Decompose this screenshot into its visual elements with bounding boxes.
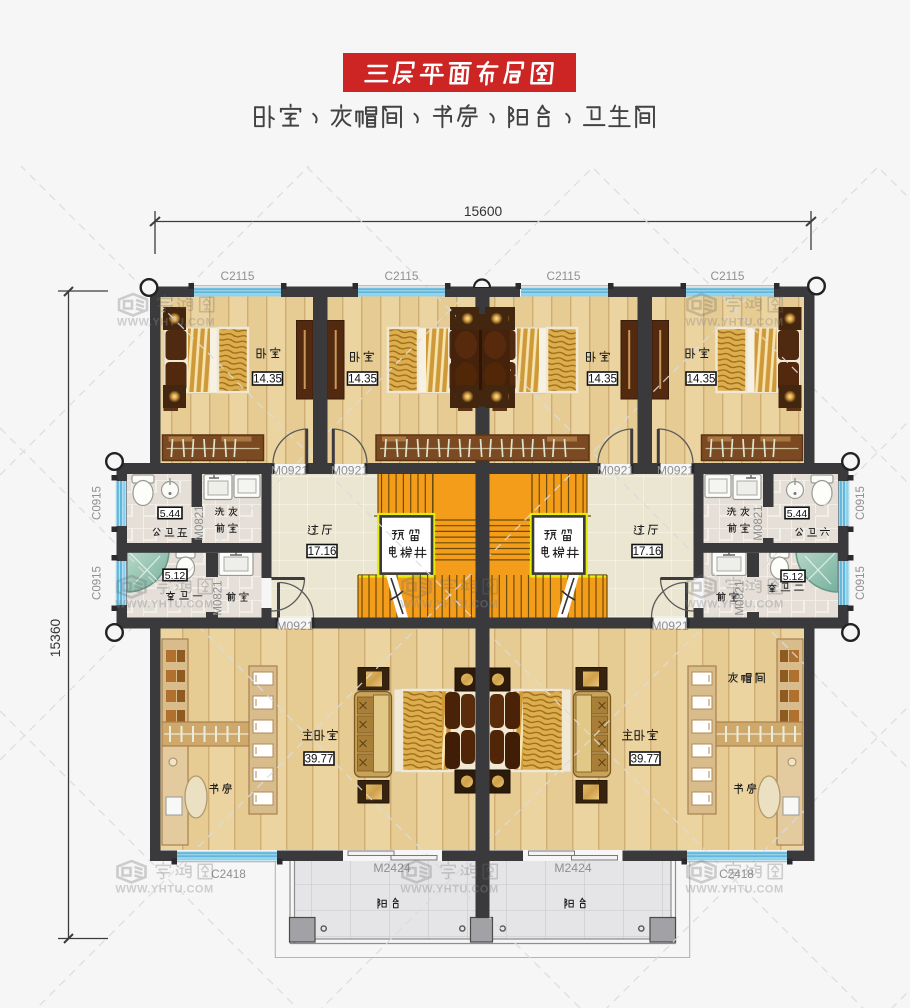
svg-text:WWW.YHTU.COM: WWW.YHTU.COM [115, 884, 213, 896]
svg-text:M0921: M0921 [271, 464, 308, 478]
svg-text:C2115: C2115 [385, 269, 419, 283]
svg-text:M0921: M0921 [657, 464, 694, 478]
svg-text:WWW.YHTU.COM: WWW.YHTU.COM [685, 599, 783, 611]
svg-text:5.44: 5.44 [787, 508, 808, 520]
svg-text:M0821: M0821 [213, 580, 225, 615]
svg-text:5.44: 5.44 [160, 508, 181, 520]
svg-text:WWW.YHTU.COM: WWW.YHTU.COM [400, 599, 498, 611]
svg-text:15600: 15600 [464, 204, 503, 219]
svg-text:C2418: C2418 [211, 867, 246, 881]
svg-text:C0915: C0915 [92, 566, 104, 600]
svg-text:C2115: C2115 [221, 269, 255, 283]
svg-text:M0921: M0921 [597, 464, 634, 478]
svg-text:WWW.YHTU.COM: WWW.YHTU.COM [115, 599, 213, 611]
svg-text:WWW.YHTU.COM: WWW.YHTU.COM [117, 317, 215, 329]
svg-text:WWW.YHTU.COM: WWW.YHTU.COM [685, 884, 783, 896]
svg-text:M2424: M2424 [373, 861, 410, 875]
svg-text:M0921: M0921 [276, 619, 313, 633]
svg-text:39.77: 39.77 [305, 754, 334, 766]
svg-text:M0821: M0821 [194, 505, 206, 540]
svg-text:C0915: C0915 [855, 566, 867, 600]
svg-text:39.77: 39.77 [631, 754, 660, 766]
svg-text:WWW.YHTU.COM: WWW.YHTU.COM [400, 884, 498, 896]
svg-text:M0921: M0921 [651, 619, 688, 633]
svg-text:M0921: M0921 [331, 464, 368, 478]
svg-text:14.35: 14.35 [588, 374, 617, 386]
svg-text:M2424: M2424 [554, 861, 591, 875]
svg-text:14.35: 14.35 [687, 374, 716, 386]
svg-text:14.35: 14.35 [348, 374, 377, 386]
svg-text:15360: 15360 [48, 618, 63, 657]
svg-text:5.12: 5.12 [783, 571, 804, 583]
svg-text:17.16: 17.16 [633, 546, 662, 558]
svg-text:WWW.YHTU.COM: WWW.YHTU.COM [685, 317, 783, 329]
svg-text:14.35: 14.35 [253, 374, 282, 386]
svg-text:C2115: C2115 [711, 269, 745, 283]
svg-text:M0821: M0821 [753, 505, 765, 540]
svg-text:C2115: C2115 [547, 269, 581, 283]
svg-text:C0915: C0915 [92, 486, 104, 520]
svg-text:17.16: 17.16 [308, 546, 337, 558]
svg-text:C0915: C0915 [855, 486, 867, 520]
